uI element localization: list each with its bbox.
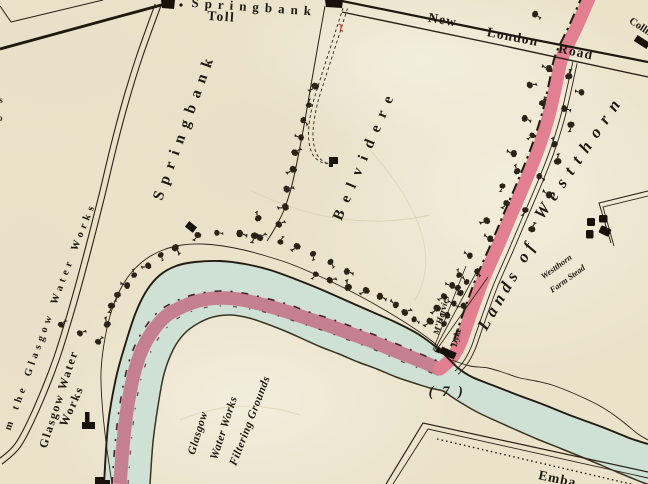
svg-text:( 7 ): ( 7 )	[429, 384, 466, 400]
svg-text:Toll: Toll	[207, 8, 236, 25]
svg-text:.s: .s	[0, 95, 3, 105]
